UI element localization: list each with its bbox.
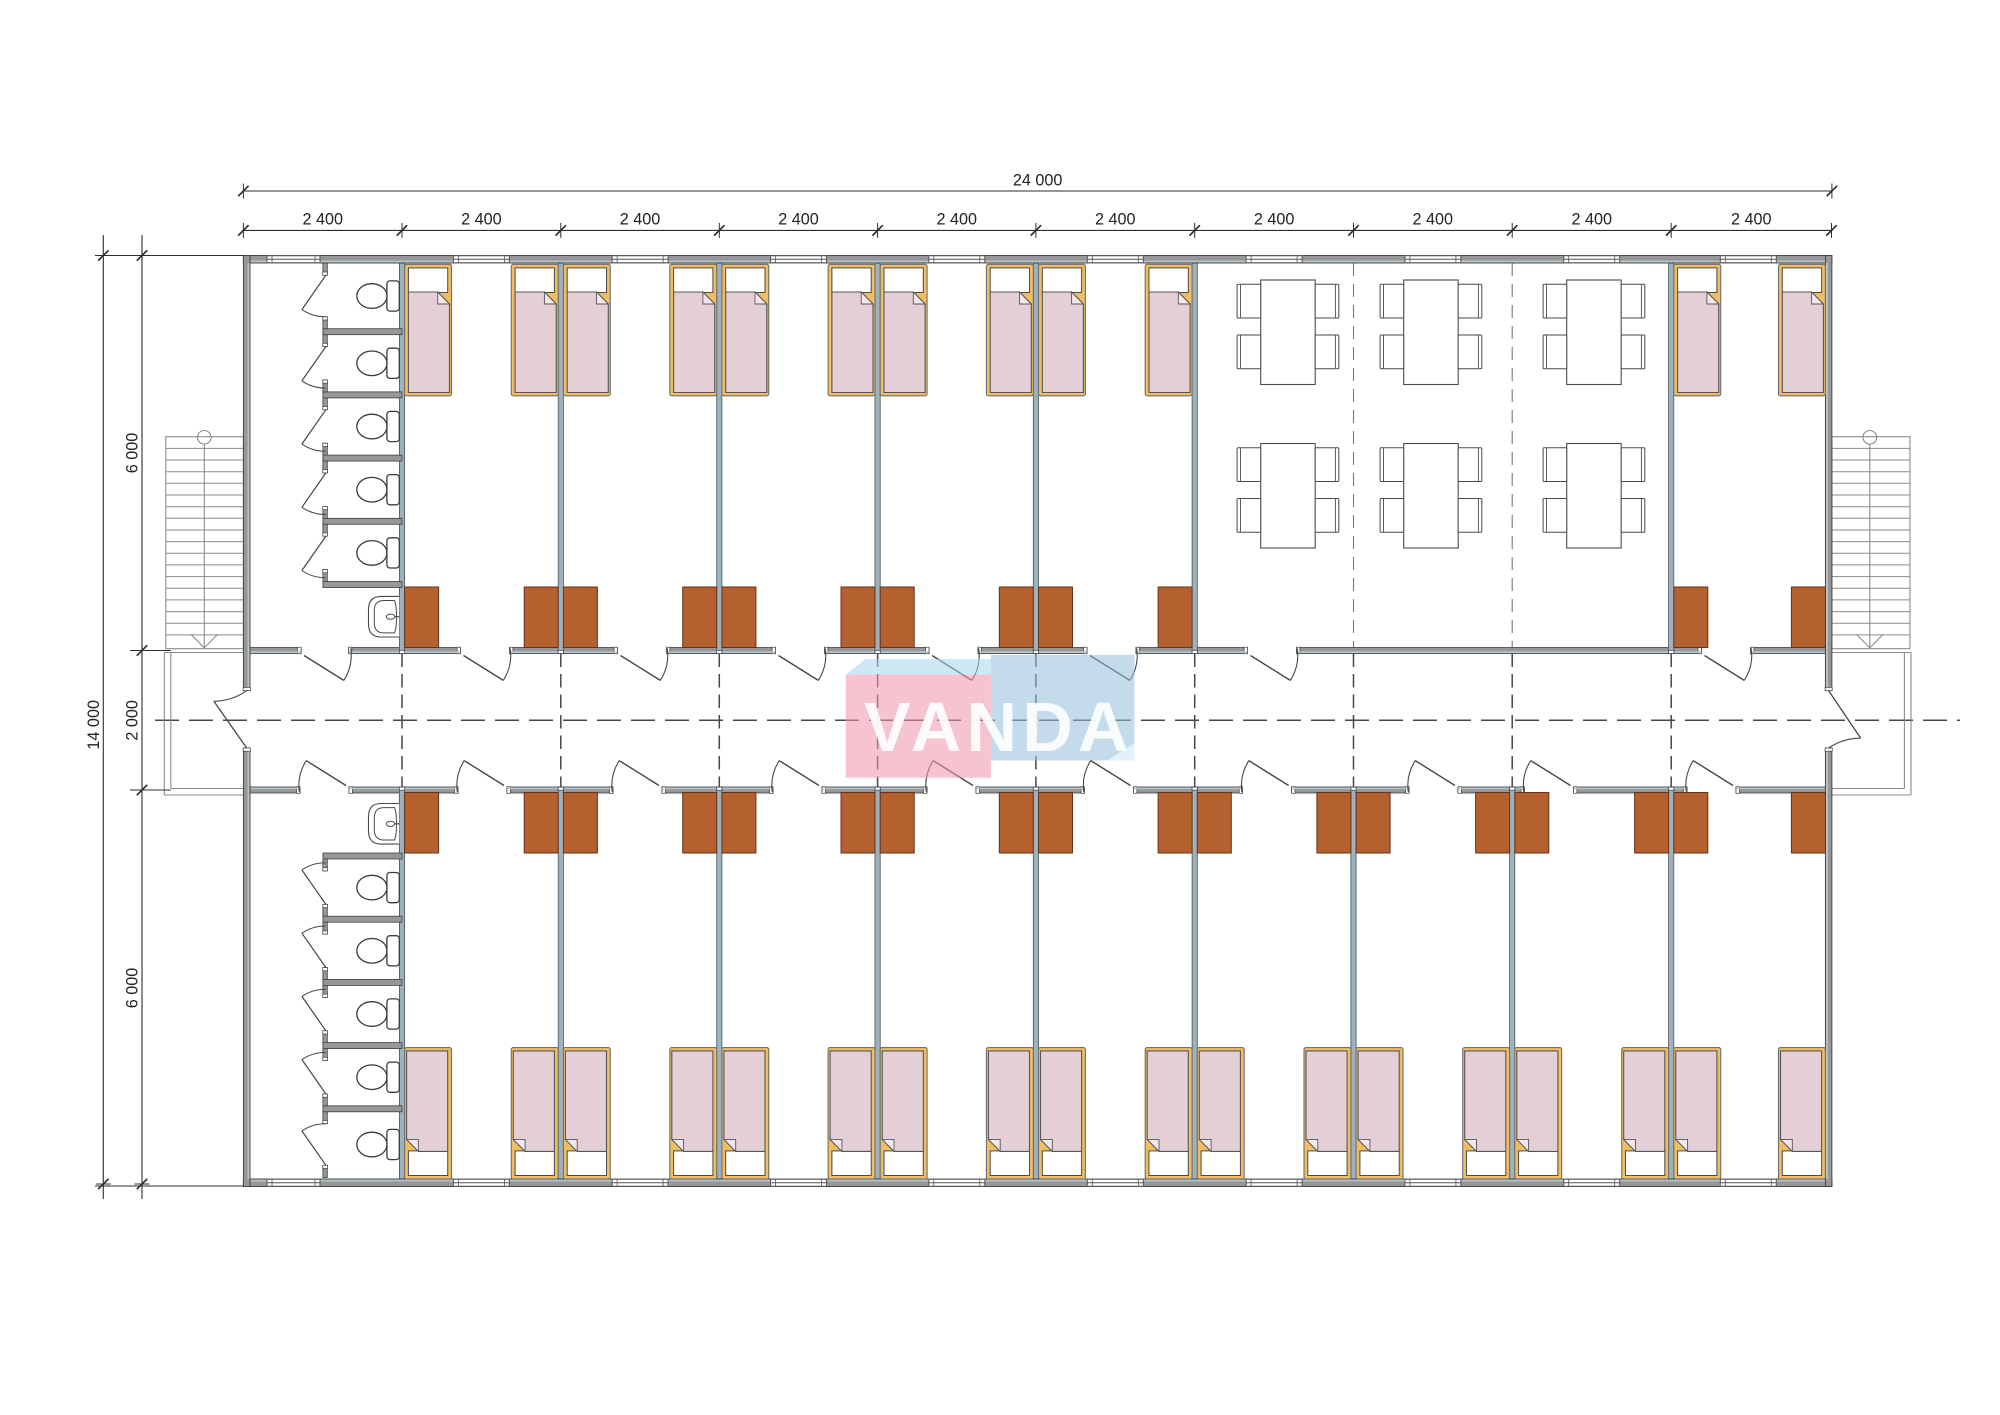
svg-text:2 400: 2 400 <box>302 210 343 228</box>
svg-text:2 400: 2 400 <box>1731 210 1772 228</box>
svg-text:2 400: 2 400 <box>461 210 502 228</box>
svg-text:14 000: 14 000 <box>85 700 103 750</box>
svg-text:6 000: 6 000 <box>123 433 141 474</box>
svg-text:2 000: 2 000 <box>123 700 141 741</box>
svg-text:2 400: 2 400 <box>1254 210 1295 228</box>
svg-text:2 400: 2 400 <box>778 210 819 228</box>
svg-text:2 400: 2 400 <box>1095 210 1136 228</box>
svg-text:VANDA: VANDA <box>864 688 1134 766</box>
svg-text:2 400: 2 400 <box>1571 210 1612 228</box>
svg-text:6 000: 6 000 <box>123 968 141 1009</box>
svg-text:2 400: 2 400 <box>937 210 978 228</box>
svg-text:2 400: 2 400 <box>620 210 661 228</box>
svg-text:24 000: 24 000 <box>1013 172 1063 190</box>
svg-text:2 400: 2 400 <box>1413 210 1454 228</box>
